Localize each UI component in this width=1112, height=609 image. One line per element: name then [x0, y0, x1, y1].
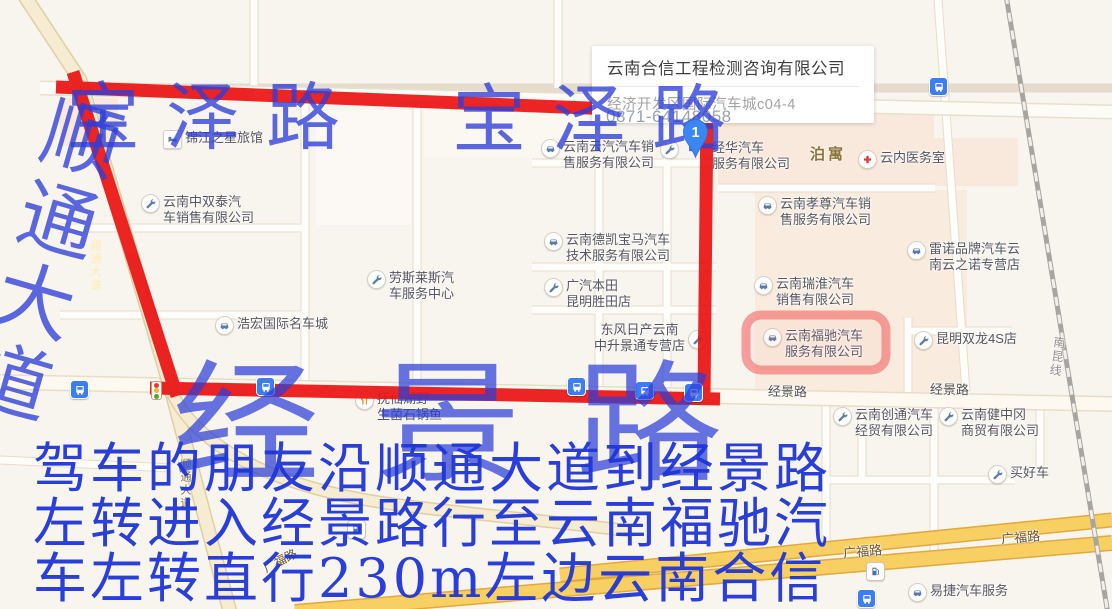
poi-shuanglong-4s-store[interactable]: 昆明双龙4S店 [914, 331, 1017, 350]
wrench-icon [660, 140, 679, 159]
poi-xiaozun-auto-sales[interactable]: 云南孝尊汽车销售服务有限公司 [758, 196, 871, 227]
poi-label: 锦江之星旅馆 [185, 130, 263, 145]
wrench-icon [833, 407, 852, 426]
car-icon [763, 328, 782, 347]
poi-yunnei-clinic[interactable]: 云内医务室 [858, 150, 945, 169]
bus-icon [688, 387, 700, 399]
car-icon [544, 232, 563, 251]
road-label-jingjing-2: 经景路 [930, 379, 969, 399]
wrench-icon [141, 194, 160, 213]
bus-icon [260, 381, 272, 393]
poi-haohong-car-city[interactable]: 浩宏国际名车城 [215, 316, 328, 335]
wrench-icon [988, 465, 1007, 484]
poi-jinghua-auto-service[interactable]: 经华汽车服务有限公司 [660, 140, 790, 171]
poi-jianzhonggang-trade[interactable]: 云南健中冈商贸有限公司 [939, 407, 1039, 438]
fuel-pump-icon [870, 566, 881, 577]
pin-number: 1 [691, 125, 699, 141]
fork-knife-icon [355, 391, 374, 410]
fuel-station-icon[interactable] [866, 562, 885, 581]
poi-fuxianhu-restaurant[interactable]: 抚仙湖野生菌石锅鱼 [355, 391, 442, 422]
road-label-jingjing-1: 经景路 [768, 381, 807, 401]
bus-stop-icon[interactable] [635, 381, 654, 400]
wrench-icon [688, 330, 707, 349]
bus-stop-icon[interactable] [70, 380, 89, 399]
fuel-station-icon[interactable] [347, 520, 366, 539]
road-label-shuntong-on-route: 顺通大道 [87, 240, 103, 292]
traffic-light-icon [151, 381, 162, 400]
road-label-guangfu-2: 广福路 [1000, 525, 1041, 547]
poi-ruihuai-auto-sales[interactable]: 云南瑞淮汽车销售有限公司 [754, 276, 854, 307]
fuel-pump-icon [351, 524, 362, 535]
area-label-boyu: 泊寓 [810, 143, 846, 164]
poi-fuchi-auto-service[interactable]: 云南福驰汽车服务有限公司 [763, 328, 863, 359]
poi-rolls-royce-service[interactable]: 劳斯莱斯汽车服务中心 [367, 270, 454, 301]
poi-maihaoche[interactable]: 买好车 [988, 465, 1049, 484]
poi-yunqi-auto-sales[interactable]: 云南云汽汽车销售服务有限公司 [541, 139, 654, 170]
car-icon [907, 241, 926, 260]
poi-dongfeng-nissan-store[interactable]: 东风日产云南中升景通专营店 [594, 322, 707, 353]
bus-icon [861, 593, 873, 605]
poi-chuangtong-auto-trade[interactable]: 云南创通汽车经贸有限公司 [833, 407, 933, 438]
car-icon [754, 276, 773, 295]
poi-renault-brand-store[interactable]: 雷诺品牌汽车云南云之诺专营店 [907, 241, 1020, 272]
red-cross-icon [858, 150, 877, 169]
car-icon [541, 139, 560, 158]
car-icon [908, 583, 927, 602]
bus-stop-icon[interactable] [256, 377, 275, 396]
car-icon [215, 316, 234, 335]
bus-icon [571, 381, 583, 393]
wrench-icon [367, 270, 386, 289]
car-icon [758, 196, 777, 215]
bus-stop-icon[interactable] [929, 77, 948, 96]
bus-stop-icon[interactable] [684, 383, 703, 402]
poi-jinjiang-inn[interactable]: 锦江之星旅馆 [163, 130, 263, 149]
poi-dekai-bmw-service[interactable]: 云南德凯宝马汽车技术服务有限公司 [544, 232, 670, 263]
bus-icon [933, 81, 945, 93]
pin-icon: 1 [681, 118, 710, 160]
marker-pin-1[interactable]: 1 [681, 118, 710, 160]
wrench-icon [914, 331, 933, 350]
bus-stop-icon[interactable] [567, 377, 586, 396]
poi-yijie-auto-service[interactable]: 易捷汽车服务 [908, 583, 1008, 602]
popup-phone: 0871-64148058 [606, 107, 732, 127]
poi-gac-honda-store[interactable]: 广汽本田昆明胜田店 [544, 278, 631, 309]
road-label-shuntong: 顺通大道 [177, 458, 193, 510]
map-canvas[interactable]: 经景路 经景路 广福路 广福路 广福路 顺通大道 顺通大道 南昆线 锦江之星旅馆… [0, 0, 1112, 609]
bus-icon [74, 384, 86, 396]
bus-stop-icon[interactable] [857, 589, 876, 608]
road-label-guangfu-1: 广福路 [842, 539, 883, 561]
wrench-icon [939, 407, 958, 426]
popup-title: 云南合信工程检测咨询有限公司 [607, 55, 860, 87]
poi-zhongshuangtai-auto[interactable]: 云南中双泰汽车销售有限公司 [141, 194, 254, 225]
hotel-bed-icon [163, 130, 182, 149]
wrench-icon [544, 278, 563, 297]
bus-icon [639, 385, 651, 397]
